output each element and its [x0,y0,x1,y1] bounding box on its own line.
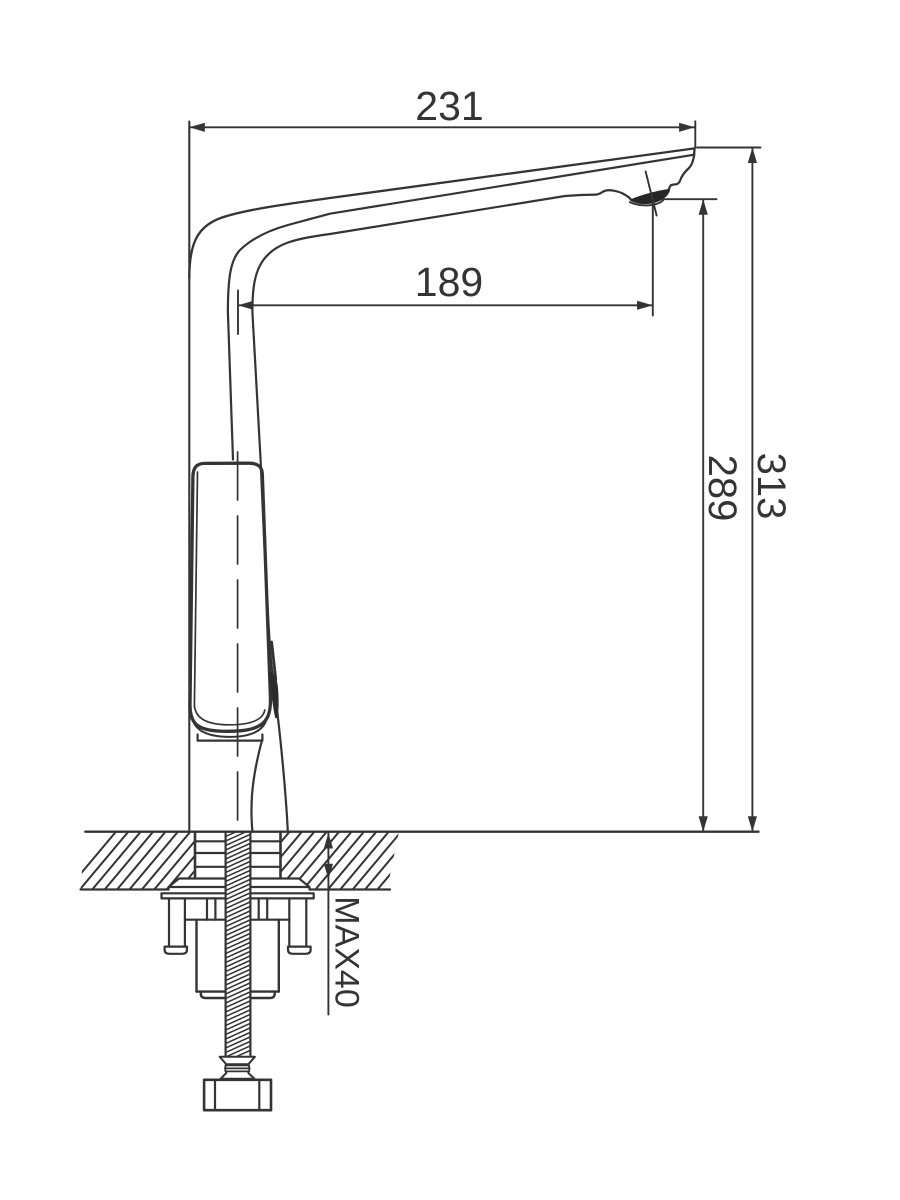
svg-text:289: 289 [700,455,744,522]
svg-text:189: 189 [415,259,483,305]
svg-text:231: 231 [415,83,483,129]
svg-text:MAX40: MAX40 [328,896,366,1008]
svg-text:313: 313 [749,453,793,520]
